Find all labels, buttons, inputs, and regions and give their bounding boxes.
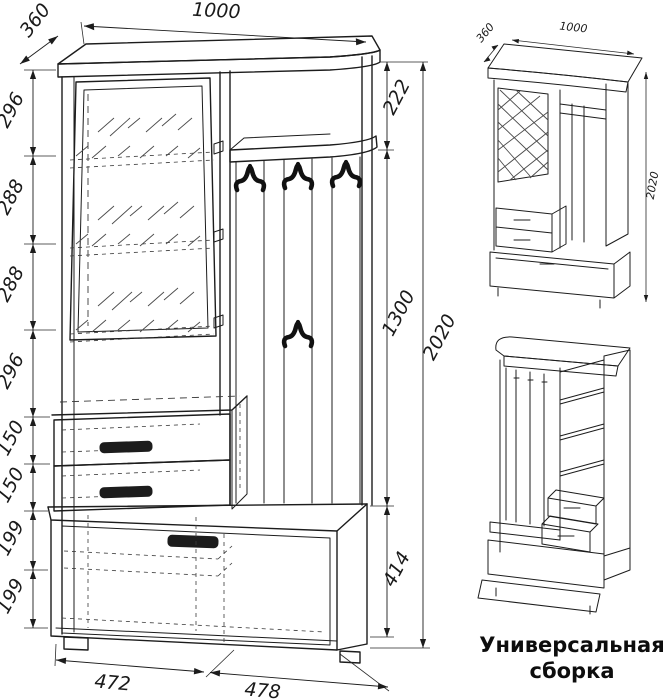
glass-shelves <box>70 141 223 342</box>
dim-199-a: 199 <box>0 517 29 559</box>
coat-hook-panel <box>236 56 372 505</box>
dim-width-top: 1000 <box>192 0 241 23</box>
drawer-handle <box>100 441 152 453</box>
dim-total-height: 2020 <box>419 311 461 364</box>
dim-199-b: 199 <box>0 575 29 617</box>
technical-drawing-page: 296 288 288 296 150 150 199 199 360 1000… <box>0 0 665 700</box>
dim-depth: 360 <box>15 0 55 41</box>
coat-hook-icon <box>236 160 360 346</box>
dim-296-bottom: 296 <box>0 350 29 392</box>
iso-dim-width: 1000 <box>559 20 588 36</box>
iso-view-open <box>478 337 630 614</box>
caption-line-1: Универсальная <box>479 633 664 657</box>
left-side-panel <box>62 77 74 634</box>
dim-150-a: 150 <box>0 417 29 459</box>
dim-414: 414 <box>378 548 414 590</box>
dim-1300: 1300 <box>378 287 420 340</box>
dim-296-top: 296 <box>0 89 29 131</box>
dim-150-b: 150 <box>0 464 29 506</box>
caption-line-2: сборка <box>530 659 615 683</box>
cabinet-door-handle <box>168 535 218 548</box>
dim-bottom-right: 478 <box>244 678 282 700</box>
dim-bottom-left: 472 <box>94 670 132 695</box>
mirror-panel <box>70 78 216 340</box>
iso-dim-depth: 360 <box>474 21 497 45</box>
drawing-canvas: 296 288 288 296 150 150 199 199 360 1000… <box>0 0 665 700</box>
dim-288-a: 288 <box>0 176 29 218</box>
niche-shelf <box>230 134 377 162</box>
drawer-unit <box>52 396 247 511</box>
canopy-shelf <box>58 36 380 77</box>
dim-222: 222 <box>378 76 414 118</box>
center-divider <box>220 71 230 505</box>
dim-288-b: 288 <box>0 263 29 305</box>
shoe-cabinet <box>48 504 367 663</box>
caption: Универсальная сборка <box>479 633 664 683</box>
iso-view-front: 360 1000 2020 <box>474 20 662 308</box>
drawer-handle <box>100 486 152 498</box>
main-front-view: 296 288 288 296 150 150 199 199 360 1000… <box>0 0 461 700</box>
